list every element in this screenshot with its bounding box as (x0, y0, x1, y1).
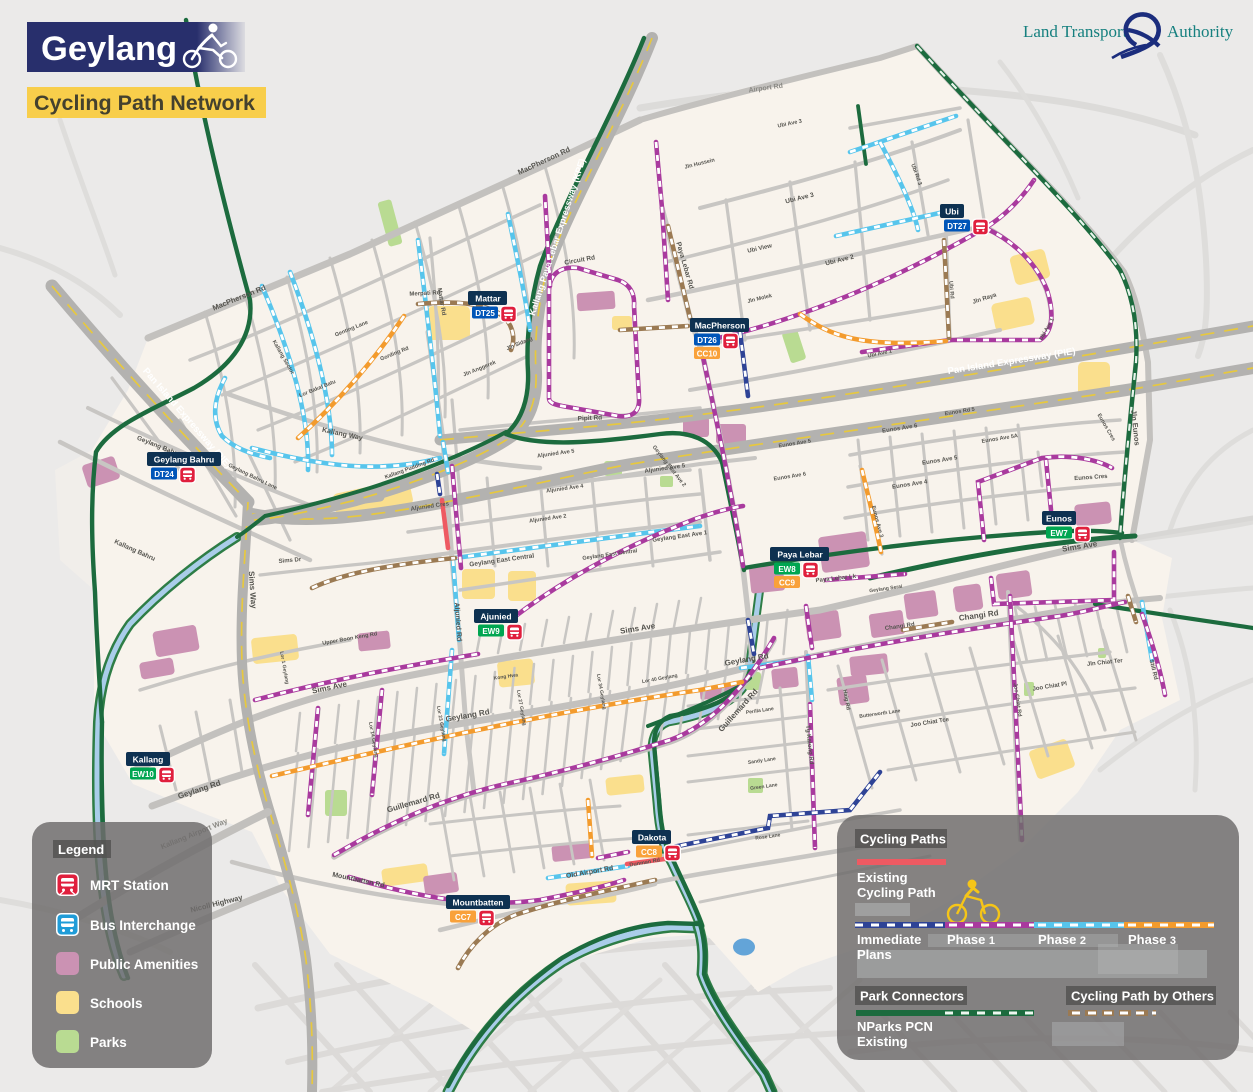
svg-text:Schools: Schools (90, 996, 143, 1011)
svg-text:Dakota: Dakota (638, 833, 667, 843)
svg-text:Cycling Path Network: Cycling Path Network (34, 91, 255, 115)
svg-text:DT26: DT26 (697, 336, 717, 345)
svg-text:Existing: Existing (857, 1034, 908, 1049)
svg-text:Existing: Existing (857, 870, 908, 885)
svg-text:Paya Lebar: Paya Lebar (777, 550, 823, 560)
svg-text:EW10: EW10 (132, 770, 154, 779)
svg-text:DT25: DT25 (475, 309, 495, 318)
svg-text:Ubi: Ubi (945, 207, 959, 217)
svg-text:Mountbatten: Mountbatten (453, 898, 504, 908)
svg-text:Land Transport: Land Transport (1023, 22, 1128, 41)
svg-text:CC8: CC8 (641, 848, 658, 857)
svg-text:Eunos: Eunos (1046, 514, 1072, 524)
svg-text:Geylang Bahru: Geylang Bahru (154, 455, 214, 465)
svg-text:CC7: CC7 (455, 913, 472, 922)
svg-text:Cycling Path: Cycling Path (857, 885, 936, 900)
svg-text:Phase 1: Phase 1 (947, 932, 995, 947)
svg-text:Mattar: Mattar (475, 294, 501, 304)
svg-text:EW9: EW9 (482, 627, 500, 636)
svg-text:Ajunied: Ajunied (480, 612, 511, 622)
svg-text:Kallang: Kallang (133, 755, 164, 765)
svg-text:CC9: CC9 (779, 579, 796, 588)
svg-text:MRT Station: MRT Station (90, 878, 169, 893)
svg-text:Phase 3: Phase 3 (1128, 932, 1176, 947)
svg-text:Parks: Parks (90, 1035, 127, 1050)
svg-text:Bus Interchange: Bus Interchange (90, 918, 196, 933)
svg-text:DT27: DT27 (947, 222, 967, 231)
svg-text:Park Connectors: Park Connectors (860, 989, 964, 1004)
svg-text:MacPherson: MacPherson (695, 321, 746, 331)
svg-text:Immediate: Immediate (857, 932, 921, 947)
svg-text:EW7: EW7 (1050, 529, 1068, 538)
svg-text:Plans: Plans (857, 947, 892, 962)
svg-text:NParks PCN: NParks PCN (857, 1019, 933, 1034)
svg-text:CC10: CC10 (697, 350, 718, 359)
svg-text:EW8: EW8 (778, 565, 796, 574)
svg-text:Cycling Paths: Cycling Paths (860, 832, 946, 847)
svg-text:Legend: Legend (58, 842, 104, 857)
svg-text:DT24: DT24 (154, 470, 174, 479)
svg-text:Authority: Authority (1167, 22, 1234, 41)
svg-text:Cycling Path by Others: Cycling Path by Others (1071, 989, 1214, 1004)
svg-text:Pipit Rd: Pipit Rd (577, 414, 602, 422)
svg-text:Geylang: Geylang (41, 30, 177, 68)
svg-text:Phase 2: Phase 2 (1038, 932, 1086, 947)
svg-text:Public Amenities: Public Amenities (90, 957, 198, 972)
